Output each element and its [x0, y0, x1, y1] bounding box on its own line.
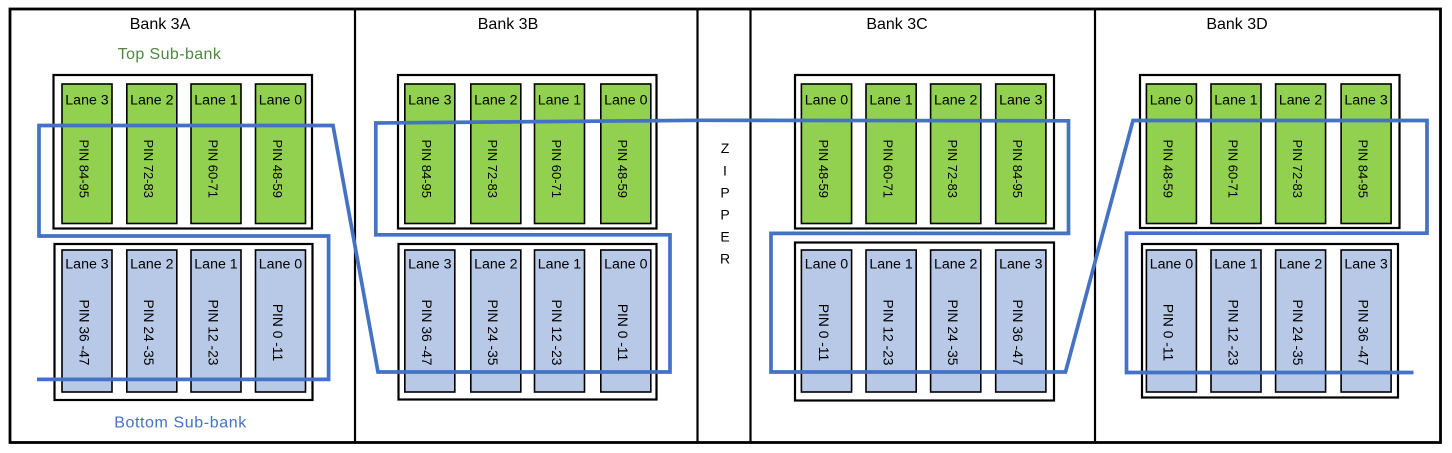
svg-text:Lane 3: Lane 3: [65, 93, 109, 109]
svg-text:Lane 3: Lane 3: [1344, 257, 1388, 273]
svg-text:Lane 0: Lane 0: [1150, 257, 1194, 273]
svg-text:PIN 72-83: PIN 72-83: [945, 139, 960, 198]
svg-text:Lane 2: Lane 2: [1279, 93, 1323, 109]
svg-text:PIN 48-59: PIN 48-59: [1161, 139, 1176, 198]
svg-text:PIN 12 -23: PIN 12 -23: [205, 300, 220, 366]
svg-text:Lane 3: Lane 3: [408, 257, 452, 273]
svg-text:R: R: [720, 251, 730, 267]
svg-text:PIN 24 -35: PIN 24 -35: [945, 300, 960, 366]
svg-text:PIN 0 -11: PIN 0 -11: [615, 304, 630, 361]
svg-text:PIN 84-95: PIN 84-95: [76, 139, 91, 198]
svg-text:PIN 72-83: PIN 72-83: [1290, 139, 1305, 198]
svg-text:PIN 12 -23: PIN 12 -23: [880, 300, 895, 366]
svg-text:PIN 60-71: PIN 60-71: [880, 139, 895, 198]
svg-text:PIN 48-59: PIN 48-59: [270, 139, 285, 198]
svg-text:Bank 3B: Bank 3B: [478, 16, 538, 33]
svg-text:Z: Z: [721, 140, 730, 156]
svg-text:Lane 2: Lane 2: [934, 257, 978, 273]
svg-text:Lane 2: Lane 2: [474, 93, 518, 109]
svg-text:Lane 0: Lane 0: [604, 93, 648, 109]
svg-text:PIN 60-71: PIN 60-71: [1225, 139, 1240, 198]
svg-text:Lane 2: Lane 2: [130, 257, 174, 273]
svg-text:Lane 2: Lane 2: [1279, 257, 1323, 273]
svg-text:PIN 84-95: PIN 84-95: [419, 139, 434, 198]
svg-text:Lane 1: Lane 1: [194, 93, 238, 109]
svg-text:PIN 24 -35: PIN 24 -35: [1290, 300, 1305, 366]
svg-text:Lane 3: Lane 3: [999, 93, 1043, 109]
svg-text:Lane 2: Lane 2: [130, 93, 174, 109]
svg-text:Lane 1: Lane 1: [869, 93, 913, 109]
svg-text:PIN 36 -47: PIN 36 -47: [1355, 300, 1370, 366]
svg-text:PIN 24 -35: PIN 24 -35: [141, 300, 156, 366]
svg-text:PIN 0 -11: PIN 0 -11: [816, 304, 831, 361]
svg-text:Lane 0: Lane 0: [259, 257, 303, 273]
svg-text:PIN 0 -11: PIN 0 -11: [1161, 304, 1176, 361]
svg-text:Lane 1: Lane 1: [1214, 93, 1258, 109]
svg-text:E: E: [720, 229, 729, 245]
svg-text:Lane 2: Lane 2: [474, 257, 518, 273]
svg-text:PIN 60-71: PIN 60-71: [549, 139, 564, 198]
svg-text:Lane 0: Lane 0: [259, 93, 303, 109]
svg-text:Lane 3: Lane 3: [999, 257, 1043, 273]
svg-text:PIN 24 -35: PIN 24 -35: [485, 300, 500, 366]
svg-text:Lane 1: Lane 1: [869, 257, 913, 273]
svg-text:PIN 48-59: PIN 48-59: [816, 139, 831, 198]
svg-text:Bank 3C: Bank 3C: [866, 16, 927, 33]
svg-text:Lane 1: Lane 1: [538, 257, 582, 273]
svg-text:PIN 36 -47: PIN 36 -47: [419, 300, 434, 366]
svg-text:PIN 36 -47: PIN 36 -47: [76, 300, 91, 366]
svg-text:PIN 36 -47: PIN 36 -47: [1010, 300, 1025, 366]
svg-text:Top Sub-bank: Top Sub-bank: [118, 46, 222, 63]
svg-text:PIN 72-83: PIN 72-83: [141, 139, 156, 198]
svg-text:Lane 1: Lane 1: [194, 257, 238, 273]
svg-text:PIN 84-95: PIN 84-95: [1010, 139, 1025, 198]
svg-text:PIN 72-83: PIN 72-83: [485, 139, 500, 198]
svg-text:Lane 0: Lane 0: [805, 93, 849, 109]
svg-text:Lane 0: Lane 0: [805, 257, 849, 273]
svg-text:PIN 60-71: PIN 60-71: [205, 139, 220, 198]
svg-text:Lane 1: Lane 1: [1214, 257, 1258, 273]
svg-text:PIN 84-95: PIN 84-95: [1355, 139, 1370, 198]
svg-text:Lane 1: Lane 1: [538, 93, 582, 109]
svg-text:Lane 3: Lane 3: [1344, 93, 1388, 109]
svg-text:Lane 3: Lane 3: [65, 257, 109, 273]
svg-text:Lane 0: Lane 0: [604, 257, 648, 273]
svg-text:Bank 3D: Bank 3D: [1206, 16, 1267, 33]
svg-text:Bottom Sub-bank: Bottom Sub-bank: [114, 415, 247, 432]
svg-text:P: P: [720, 184, 729, 200]
svg-text:Lane 2: Lane 2: [934, 93, 978, 109]
svg-text:PIN 0 -11: PIN 0 -11: [270, 304, 285, 361]
svg-text:PIN 12 -23: PIN 12 -23: [549, 300, 564, 366]
svg-text:P: P: [720, 207, 729, 223]
svg-text:PIN 12 -23: PIN 12 -23: [1225, 300, 1240, 366]
svg-text:Lane 0: Lane 0: [1150, 93, 1194, 109]
svg-text:PIN 48-59: PIN 48-59: [615, 139, 630, 198]
svg-text:I: I: [723, 162, 727, 178]
svg-text:Lane 3: Lane 3: [408, 93, 452, 109]
svg-text:Bank 3A: Bank 3A: [130, 16, 191, 33]
